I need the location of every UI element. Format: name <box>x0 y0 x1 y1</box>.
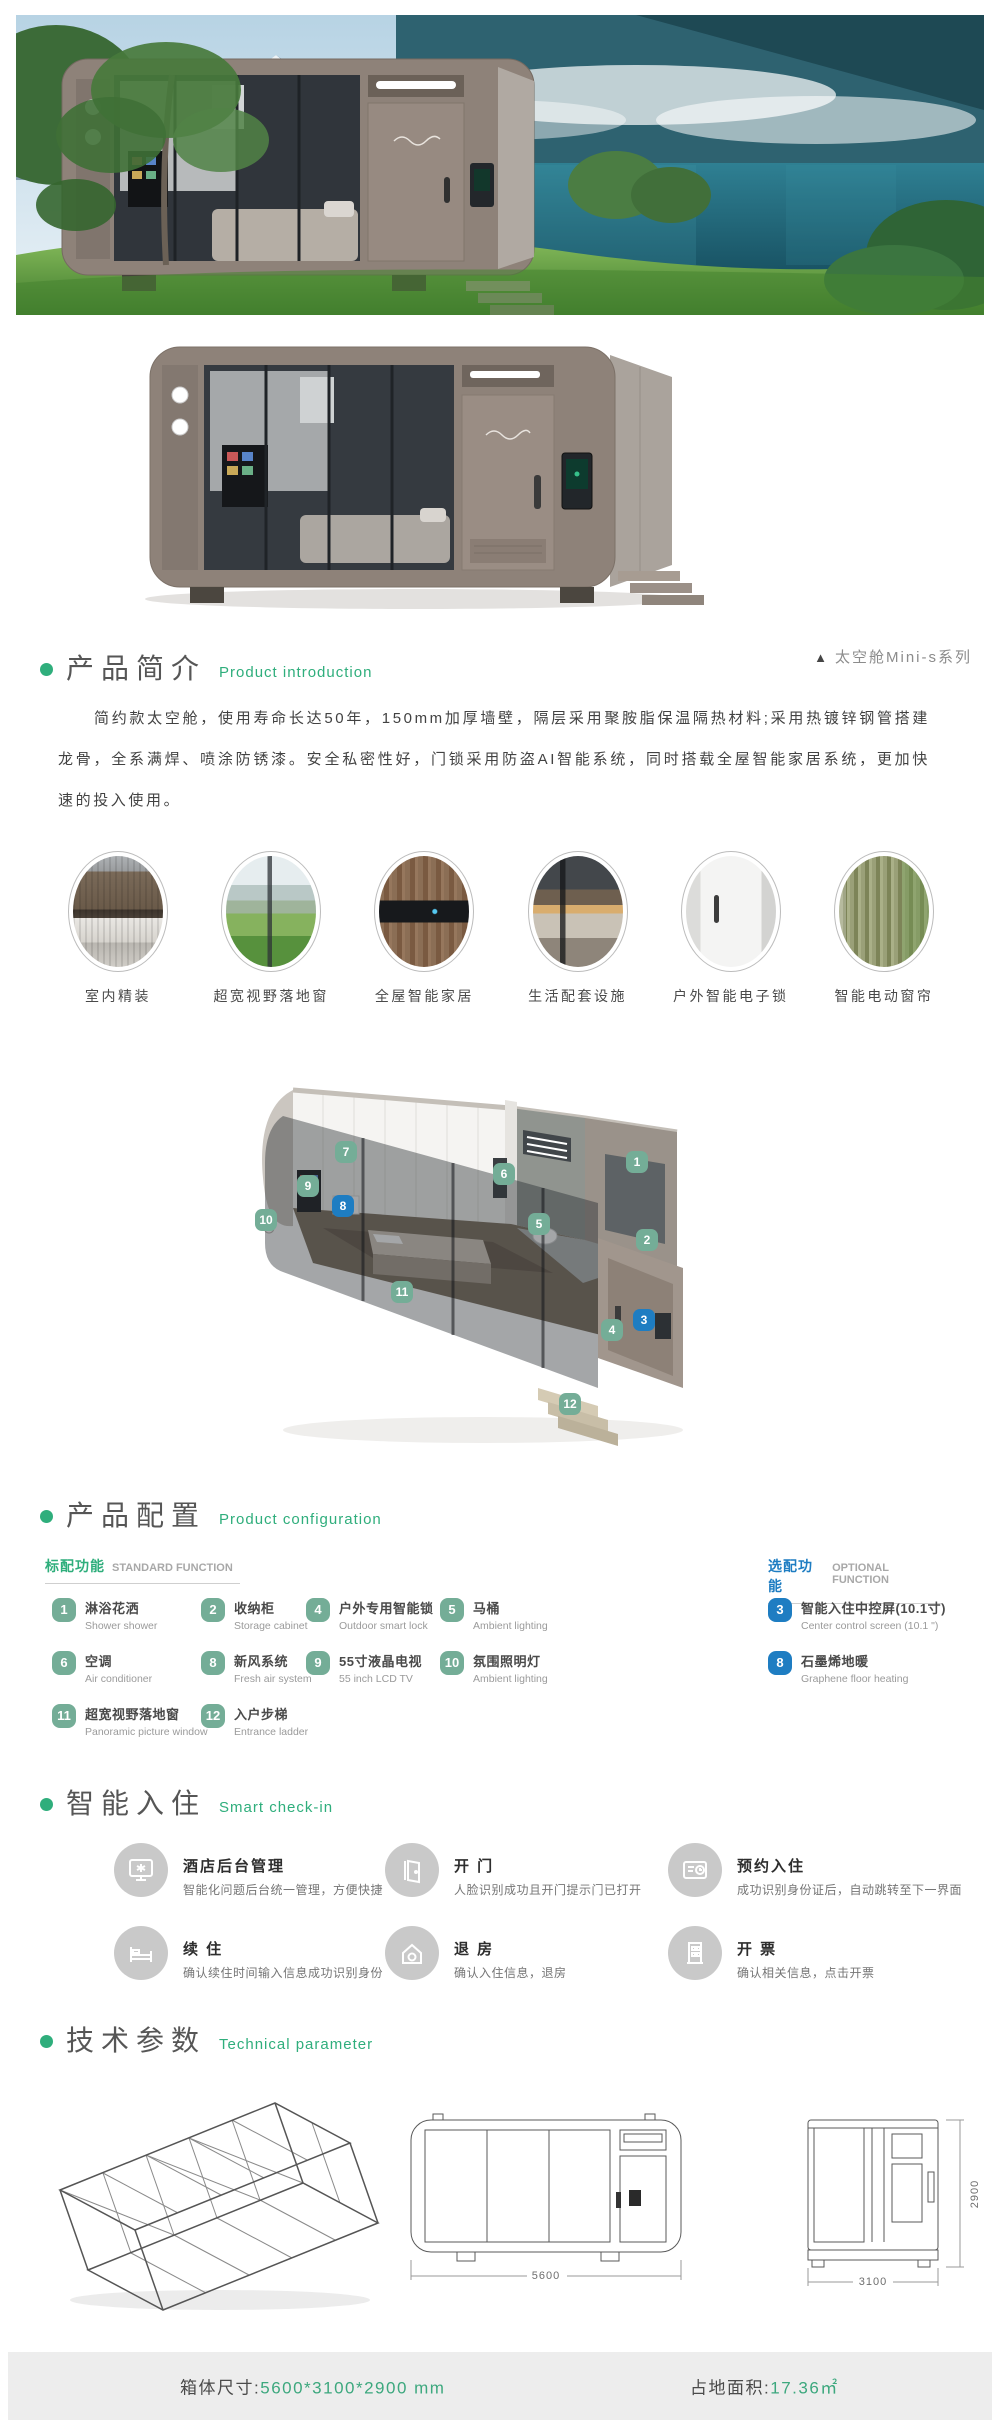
product-detail-page: ▲太空舱Mini-s系列 产品简介 Product introduction 简… <box>0 0 1000 2427</box>
section-title-zh: 技术参数 <box>66 2027 206 2055</box>
feature-photo-curtain <box>834 851 934 972</box>
config-zh: 氛围照明灯 <box>473 1651 548 1670</box>
config-en: Center control screen (10.1 ") <box>801 1620 946 1632</box>
config-zh: 户外专用智能锁 <box>339 1598 434 1617</box>
callout-badge: 8 <box>332 1195 354 1217</box>
config-number-badge: 10 <box>440 1651 464 1675</box>
series-tag: ▲太空舱Mini-s系列 <box>814 646 972 667</box>
config-number-badge: 3 <box>768 1598 792 1622</box>
cutaway-diagram: 1 2 3 4 5 6 7 8 9 10 11 12 <box>253 1058 713 1456</box>
config-item: 1 淋浴花洒Shower shower <box>52 1598 157 1632</box>
config-item: 9 55寸液晶电视55 inch LCD TV <box>306 1651 422 1685</box>
config-item: 8 新风系统Fresh air system <box>201 1651 312 1685</box>
config-en: Graphene floor heating <box>801 1673 908 1685</box>
floor-area-spec: 占地面积: 17.36㎡ <box>690 2374 839 2399</box>
checkin-icon-circle <box>385 1843 439 1897</box>
feature-item: 全屋智能家居 <box>370 851 478 1006</box>
standard-function-en: STANDARD FUNCTION <box>112 1562 233 1574</box>
config-en: Ambient lighting <box>473 1620 548 1632</box>
green-dot-icon <box>40 663 53 676</box>
config-number-badge: 6 <box>52 1651 76 1675</box>
config-item-optional: 8 石墨烯地暖Graphene floor heating <box>768 1651 908 1685</box>
standard-function-header: 标配功能 STANDARD FUNCTION <box>45 1556 240 1584</box>
checkin-desc: 智能化问题后台统一管理，方便快捷 <box>183 1881 383 1898</box>
callout-badge: 2 <box>636 1229 658 1251</box>
section-title-en: Product introduction <box>219 664 372 683</box>
section-header-checkin: 智能入住 Smart check-in <box>40 1790 333 1818</box>
config-number-badge: 8 <box>201 1651 225 1675</box>
config-number-badge: 12 <box>201 1704 225 1728</box>
checkin-icon-circle <box>385 1926 439 1980</box>
checkin-icon-circle <box>668 1926 722 1980</box>
callout-badge: 3 <box>633 1309 655 1331</box>
section-title-zh: 产品简介 <box>66 655 206 683</box>
config-zh: 淋浴花洒 <box>85 1598 157 1617</box>
footer-spec-bar: 箱体尺寸: 5600*3100*2900 mm 占地面积: 17.36㎡ <box>8 2352 992 2420</box>
callout-badge: 7 <box>335 1141 357 1163</box>
checkin-title: 开 票 <box>737 1938 777 1959</box>
feature-label: 超宽视野落地窗 <box>213 986 329 1006</box>
checkin-title: 退 房 <box>454 1938 494 1959</box>
intro-paragraph: 简约款太空舱，使用寿命长达50年，150mm加厚墙壁，隔层采用聚胺脂保温隔热材料… <box>58 698 930 821</box>
config-item: 4 户外专用智能锁Outdoor smart lock <box>306 1598 434 1632</box>
config-number-badge: 11 <box>52 1704 76 1728</box>
checkin-title: 开 门 <box>454 1855 494 1876</box>
hero-landscape-illustration <box>16 15 984 315</box>
checkin-desc: 成功识别身份证后，自动跳转至下一界面 <box>737 1881 962 1898</box>
reservation-icon <box>681 1856 709 1884</box>
section-title-en: Technical parameter <box>219 2036 373 2055</box>
config-item: 12 入户步梯Entrance ladder <box>201 1704 308 1738</box>
box-size-spec: 箱体尺寸: 5600*3100*2900 mm <box>180 2374 445 2399</box>
section-title-en: Product configuration <box>219 1511 382 1530</box>
section-title-en: Smart check-in <box>219 1799 333 1818</box>
checkin-desc: 确认相关信息，点击开票 <box>737 1964 875 1981</box>
callout-badge: 5 <box>528 1213 550 1235</box>
series-tag-label: 太空舱Mini-s系列 <box>835 649 972 666</box>
feature-label: 室内精装 <box>85 986 151 1006</box>
callout-badge: 12 <box>559 1393 581 1415</box>
config-item: 2 收纳柜Storage cabinet <box>201 1598 308 1632</box>
dim-side-width: 3100 <box>859 2276 887 2288</box>
config-zh: 55寸液晶电视 <box>339 1651 422 1670</box>
config-en: Air conditioner <box>85 1673 152 1685</box>
callout-badge: 4 <box>601 1319 623 1341</box>
optional-function-zh: 选配功能 <box>768 1556 825 1596</box>
feature-label: 智能电动窗帘 <box>834 986 933 1006</box>
config-en: Entrance ladder <box>234 1726 308 1738</box>
config-item-optional: 3 智能入住中控屏(10.1寸)Center control screen (1… <box>768 1598 946 1632</box>
box-size-label: 箱体尺寸: <box>180 2374 260 2399</box>
callout-badge: 11 <box>391 1281 413 1303</box>
green-dot-icon <box>40 2035 53 2048</box>
section-header-config: 产品配置 Product configuration <box>40 1502 382 1530</box>
callout-badge: 10 <box>255 1209 277 1231</box>
checkin-icon-circle <box>668 1843 722 1897</box>
config-item: 11 超宽视野落地窗Panoramic picture window <box>52 1704 208 1738</box>
door-handle-icon <box>714 895 719 923</box>
config-number-badge: 8 <box>768 1651 792 1675</box>
feature-label: 全屋智能家居 <box>375 986 474 1006</box>
config-en: Ambient lighting <box>473 1673 548 1685</box>
standard-function-zh: 标配功能 <box>45 1556 105 1576</box>
optional-function-en: OPTIONAL FUNCTION <box>832 1562 943 1586</box>
checkin-icon-circle <box>114 1843 168 1897</box>
config-zh: 入户步梯 <box>234 1704 308 1723</box>
product-render <box>0 325 1000 625</box>
optional-function-header: 选配功能 OPTIONAL FUNCTION <box>768 1556 943 1604</box>
checkin-desc: 人脸识别成功且开门提示门已打开 <box>454 1881 642 1898</box>
cutaway-illustration <box>253 1058 713 1456</box>
feature-item: 生活配套设施 <box>524 851 632 1006</box>
capsule-render-illustration <box>0 325 1000 625</box>
floor-area-label: 占地面积: <box>690 2374 770 2399</box>
door-icon <box>398 1856 426 1884</box>
dim-front-width: 5600 <box>532 2270 560 2282</box>
config-en: Storage cabinet <box>234 1620 308 1632</box>
callout-badge: 9 <box>297 1175 319 1197</box>
config-en: Panoramic picture window <box>85 1726 208 1738</box>
config-number-badge: 5 <box>440 1598 464 1622</box>
checkin-desc: 确认续住时间输入信息成功识别身份 <box>183 1964 383 1981</box>
checkin-title: 酒店后台管理 <box>183 1855 285 1876</box>
config-zh: 石墨烯地暖 <box>801 1651 908 1670</box>
config-en: Outdoor smart lock <box>339 1620 434 1632</box>
front-elevation-drawing: 5600 <box>405 2112 690 2302</box>
section-title-zh: 智能入住 <box>66 1790 206 1818</box>
config-zh: 马桶 <box>473 1598 548 1617</box>
feature-photo-interior <box>68 851 168 972</box>
floor-area-value: 17.36㎡ <box>770 2374 839 2399</box>
checkin-desc: 确认入住信息，退房 <box>454 1964 567 1981</box>
feature-photo-window <box>221 851 321 972</box>
feature-gallery: 室内精装 超宽视野落地窗 全屋智能家居 生活配套设施 户外智能电子锁 智能电动窗… <box>64 851 938 1006</box>
feature-label: 生活配套设施 <box>528 986 627 1006</box>
config-zh: 空调 <box>85 1651 152 1670</box>
feature-item: 户外智能电子锁 <box>677 851 785 1006</box>
section-header-intro: 产品简介 Product introduction <box>40 655 372 683</box>
config-number-badge: 1 <box>52 1598 76 1622</box>
invoice-icon <box>681 1939 709 1967</box>
config-en: Fresh air system <box>234 1673 312 1685</box>
hero-photo <box>16 15 984 315</box>
checkin-title: 续 住 <box>183 1938 223 1959</box>
section-title-zh: 产品配置 <box>66 1502 206 1530</box>
triangle-icon: ▲ <box>814 650 827 665</box>
side-elevation-drawing: 3100 2900 <box>800 2112 990 2302</box>
feature-photo-smart-home <box>374 851 474 972</box>
feature-photo-door-lock <box>681 851 781 972</box>
checkin-icon-circle <box>114 1926 168 1980</box>
bed-icon <box>127 1939 155 1967</box>
feature-item: 室内精装 <box>64 851 172 1006</box>
section-header-tech: 技术参数 Technical parameter <box>40 2027 373 2055</box>
green-dot-icon <box>40 1798 53 1811</box>
dim-height: 2900 <box>969 2180 981 2208</box>
callout-badge: 1 <box>626 1151 648 1173</box>
green-dot-icon <box>40 1510 53 1523</box>
box-size-value: 5600*3100*2900 mm <box>260 2379 445 2399</box>
config-zh: 新风系统 <box>234 1651 312 1670</box>
config-en: 55 inch LCD TV <box>339 1673 422 1685</box>
config-number-badge: 4 <box>306 1598 330 1622</box>
config-zh: 超宽视野落地窗 <box>85 1704 208 1723</box>
checkin-title: 预约入住 <box>737 1855 805 1876</box>
callout-badge: 6 <box>493 1163 515 1185</box>
config-en: Shower shower <box>85 1620 157 1632</box>
config-zh: 收纳柜 <box>234 1598 308 1617</box>
config-number-badge: 2 <box>201 1598 225 1622</box>
config-item: 10 氛围照明灯Ambient lighting <box>440 1651 548 1685</box>
console-icon <box>127 1856 155 1884</box>
feature-item: 超宽视野落地窗 <box>217 851 325 1006</box>
feature-photo-facilities <box>528 851 628 972</box>
feature-item: 智能电动窗帘 <box>830 851 938 1006</box>
config-item: 6 空调Air conditioner <box>52 1651 152 1685</box>
config-number-badge: 9 <box>306 1651 330 1675</box>
feature-label: 户外智能电子锁 <box>673 986 789 1006</box>
frame-wireframe-drawing <box>30 2095 390 2320</box>
config-item: 5 马桶Ambient lighting <box>440 1598 548 1632</box>
checkout-home-icon <box>398 1939 426 1967</box>
config-zh: 智能入住中控屏(10.1寸) <box>801 1598 946 1617</box>
